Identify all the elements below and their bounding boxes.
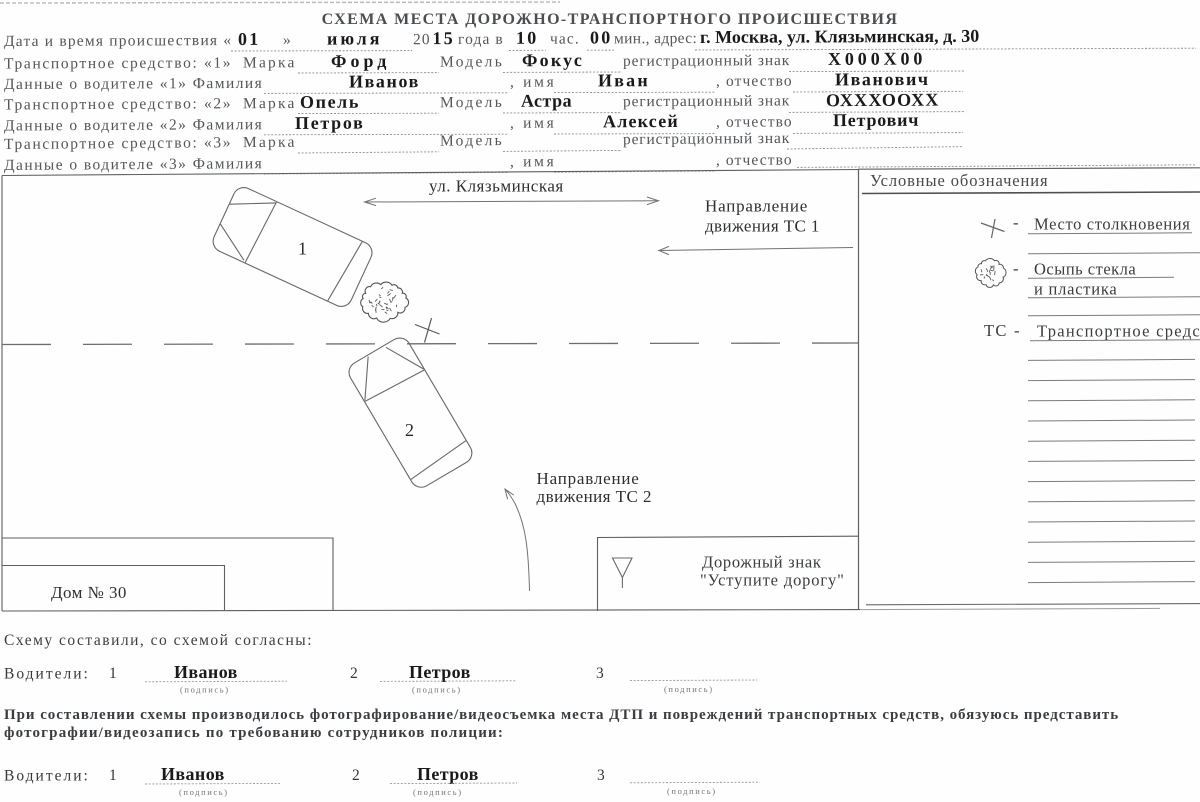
svg-text:(подпись): (подпись) bbox=[180, 685, 230, 695]
svg-text:2: 2 bbox=[350, 665, 358, 682]
svg-text:Иванов: Иванов bbox=[349, 71, 420, 91]
svg-text:СХЕМА МЕСТА ДОРОЖНО-ТРАНСПОРТН: СХЕМА МЕСТА ДОРОЖНО-ТРАНСПОРТНОГО ПРОИСШ… bbox=[322, 11, 899, 28]
svg-text:, отчество: , отчество bbox=[716, 73, 793, 90]
svg-text:Место столкновения: Место столкновения bbox=[1034, 215, 1191, 234]
svg-text:(подпись): (подпись) bbox=[664, 684, 714, 694]
svg-text:Х000Х00: Х000Х00 bbox=[828, 48, 926, 68]
svg-text:фотографии/видеозапись по треб: фотографии/видеозапись по требованию сот… bbox=[4, 725, 504, 741]
svg-text:, имя: , имя bbox=[510, 153, 557, 170]
svg-text:»: » bbox=[283, 32, 292, 49]
svg-text:года в: года в bbox=[458, 31, 504, 48]
svg-text:-: - bbox=[1013, 259, 1020, 278]
svg-text:00: 00 bbox=[590, 27, 612, 47]
svg-text:Дом № 30: Дом № 30 bbox=[51, 583, 127, 602]
svg-text:регистрационный знак: регистрационный знак bbox=[623, 92, 790, 110]
svg-text:-: - bbox=[1014, 321, 1021, 340]
svg-text:движения ТС 1: движения ТС 1 bbox=[705, 217, 820, 236]
svg-text:движения ТС 2: движения ТС 2 bbox=[537, 487, 652, 506]
svg-text:регистрационный знак: регистрационный знак bbox=[623, 130, 790, 148]
svg-text:Фокус: Фокус bbox=[522, 50, 584, 70]
svg-text:регистрационный знак: регистрационный знак bbox=[623, 52, 790, 70]
svg-text:и пластика: и пластика bbox=[1034, 280, 1118, 299]
svg-text:ОХХХООХХ: ОХХХООХХ bbox=[826, 90, 940, 111]
svg-text:Водители:: Водители: bbox=[4, 666, 90, 683]
svg-text:г. Москва, ул. Клязьминская, д: г. Москва, ул. Клязьминская, д. 30 bbox=[700, 26, 979, 47]
svg-text:Дата и время происшествия «: Дата и время происшествия « bbox=[4, 32, 232, 50]
svg-text:Иванович: Иванович bbox=[835, 69, 930, 89]
svg-text:, отчество: , отчество bbox=[716, 151, 793, 169]
svg-text:Иван: Иван bbox=[598, 70, 650, 90]
svg-text:Форд: Форд bbox=[331, 51, 390, 71]
svg-text:Марка: Марка bbox=[243, 134, 297, 151]
svg-text:Петров: Петров bbox=[417, 764, 479, 784]
svg-text:Транспортное средство: Транспортное средство bbox=[1037, 322, 1200, 341]
svg-text:При составлении схемы производ: При составлении схемы производилось фото… bbox=[4, 707, 1119, 723]
svg-text:1: 1 bbox=[109, 665, 117, 682]
svg-text:15: 15 bbox=[432, 28, 454, 48]
svg-text:1: 1 bbox=[109, 767, 117, 784]
svg-text:Алексей: Алексей bbox=[603, 111, 679, 131]
svg-text:Водители:: Водители: bbox=[4, 768, 90, 785]
svg-text:"Уступите дорогу": "Уступите дорогу" bbox=[700, 571, 845, 590]
svg-text:, отчество: , отчество bbox=[716, 113, 793, 130]
svg-text:Транспортное средство: «2»: Транспортное средство: «2» bbox=[4, 95, 232, 113]
svg-text:2: 2 bbox=[405, 420, 414, 440]
svg-text:Данные о водителе «3» Фамилия: Данные о водителе «3» Фамилия bbox=[4, 155, 263, 174]
svg-text:(подпись): (подпись) bbox=[412, 685, 462, 695]
svg-text:час.: час. bbox=[550, 30, 580, 47]
svg-text:, имя: , имя bbox=[510, 74, 557, 91]
svg-text:Транспортное средство: «1»: Транспортное средство: «1» bbox=[4, 55, 232, 73]
svg-text:Направление: Направление bbox=[705, 197, 808, 216]
svg-text:1: 1 bbox=[298, 239, 307, 259]
svg-text:ТС: ТС bbox=[984, 321, 1008, 340]
svg-text:Опель: Опель bbox=[300, 92, 360, 112]
svg-text:Дорожный знак: Дорожный знак bbox=[702, 553, 822, 572]
svg-text:, имя: , имя bbox=[510, 115, 557, 132]
svg-text:Данные о водителе «2» Фамилия: Данные о водителе «2» Фамилия bbox=[4, 116, 263, 134]
svg-text:Марка: Марка bbox=[243, 54, 297, 71]
svg-text:(подпись): (подпись) bbox=[179, 787, 229, 797]
svg-text:2: 2 bbox=[352, 767, 360, 784]
svg-text:Осыпь стекла: Осыпь стекла bbox=[1034, 260, 1136, 279]
svg-text:Марка: Марка bbox=[243, 95, 297, 112]
svg-text:3: 3 bbox=[597, 767, 605, 784]
svg-text:Петрович: Петрович bbox=[833, 110, 919, 130]
svg-text:01: 01 bbox=[238, 29, 260, 49]
svg-text:Петров: Петров bbox=[409, 662, 471, 682]
svg-text:Условные обозначения: Условные обозначения bbox=[870, 171, 1048, 190]
svg-text:Данные о водителе «1» Фамилия: Данные о водителе «1» Фамилия bbox=[4, 75, 263, 93]
svg-text:Модель: Модель bbox=[440, 53, 504, 70]
svg-text:Петров: Петров bbox=[295, 113, 365, 133]
svg-text:Иванов: Иванов bbox=[161, 764, 225, 784]
svg-text:ул. Клязьминская: ул. Клязьминская bbox=[429, 177, 564, 196]
svg-text:Направление: Направление bbox=[537, 469, 640, 488]
svg-text:-: - bbox=[1013, 213, 1020, 232]
svg-text:(подпись): (подпись) bbox=[667, 786, 717, 796]
svg-text:Иванов: Иванов bbox=[174, 662, 238, 682]
svg-text:Модель: Модель bbox=[440, 94, 504, 111]
svg-text:Схему составили, со схемой сог: Схему составили, со схемой согласны: bbox=[4, 632, 313, 649]
svg-text:20: 20 bbox=[413, 31, 431, 48]
svg-text:3: 3 bbox=[596, 665, 604, 682]
svg-text:(подпись): (подпись) bbox=[413, 787, 463, 797]
svg-text:мин., адрес:: мин., адрес: bbox=[614, 30, 697, 47]
svg-text:Модель: Модель bbox=[440, 132, 504, 150]
svg-text:июля: июля bbox=[327, 28, 383, 48]
svg-text:Транспортное средство: «3»: Транспортное средство: «3» bbox=[4, 134, 232, 153]
svg-text:Астра: Астра bbox=[521, 91, 572, 111]
svg-text:10: 10 bbox=[516, 28, 538, 48]
